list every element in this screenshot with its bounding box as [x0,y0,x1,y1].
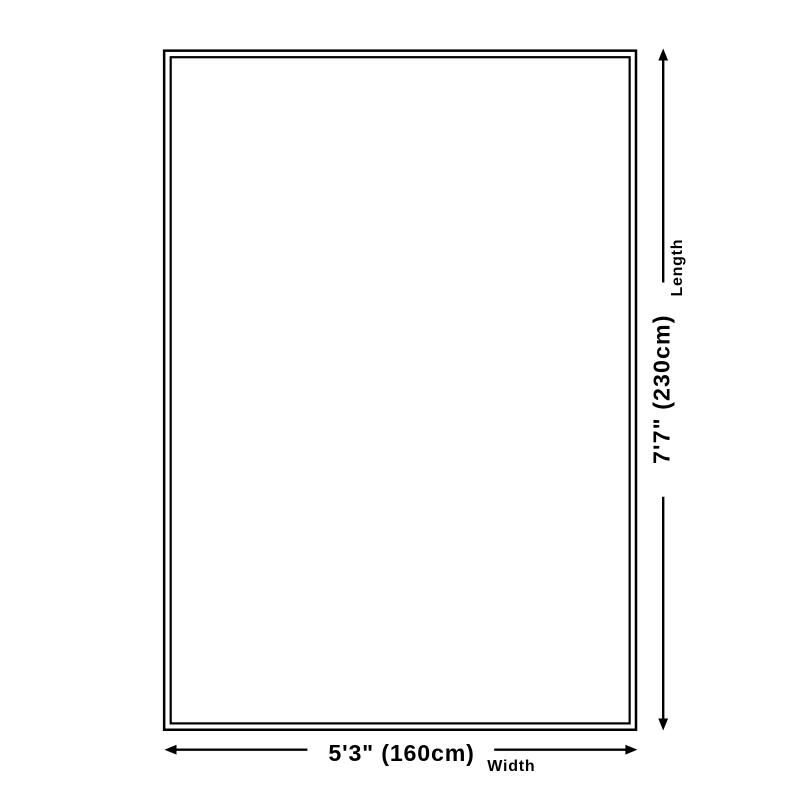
svg-text:Width: Width [487,758,535,775]
svg-text:7'7" (230cm): 7'7" (230cm) [649,316,675,465]
svg-text:5'3" (160cm): 5'3" (160cm) [328,740,474,766]
svg-text:Length: Length [669,240,686,297]
